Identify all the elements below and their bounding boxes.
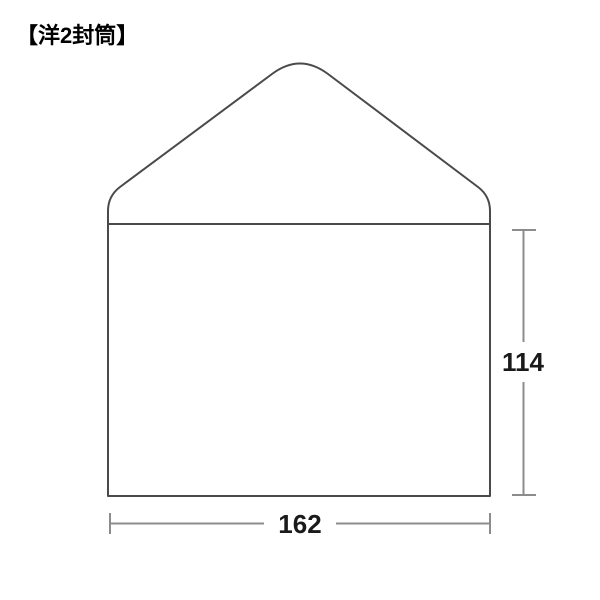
envelope-flap [108, 64, 490, 225]
envelope-body [108, 224, 490, 496]
envelope-diagram-page: 【洋2封筒】 162 114 [0, 0, 600, 600]
width-dimension-label: 162 [278, 509, 321, 539]
dimension-labels: 162 114 [278, 347, 544, 539]
dimension-lines [110, 230, 536, 534]
envelope-outline [108, 64, 490, 497]
envelope-diagram: 162 114 [0, 0, 600, 600]
height-dimension-label: 114 [502, 347, 544, 377]
